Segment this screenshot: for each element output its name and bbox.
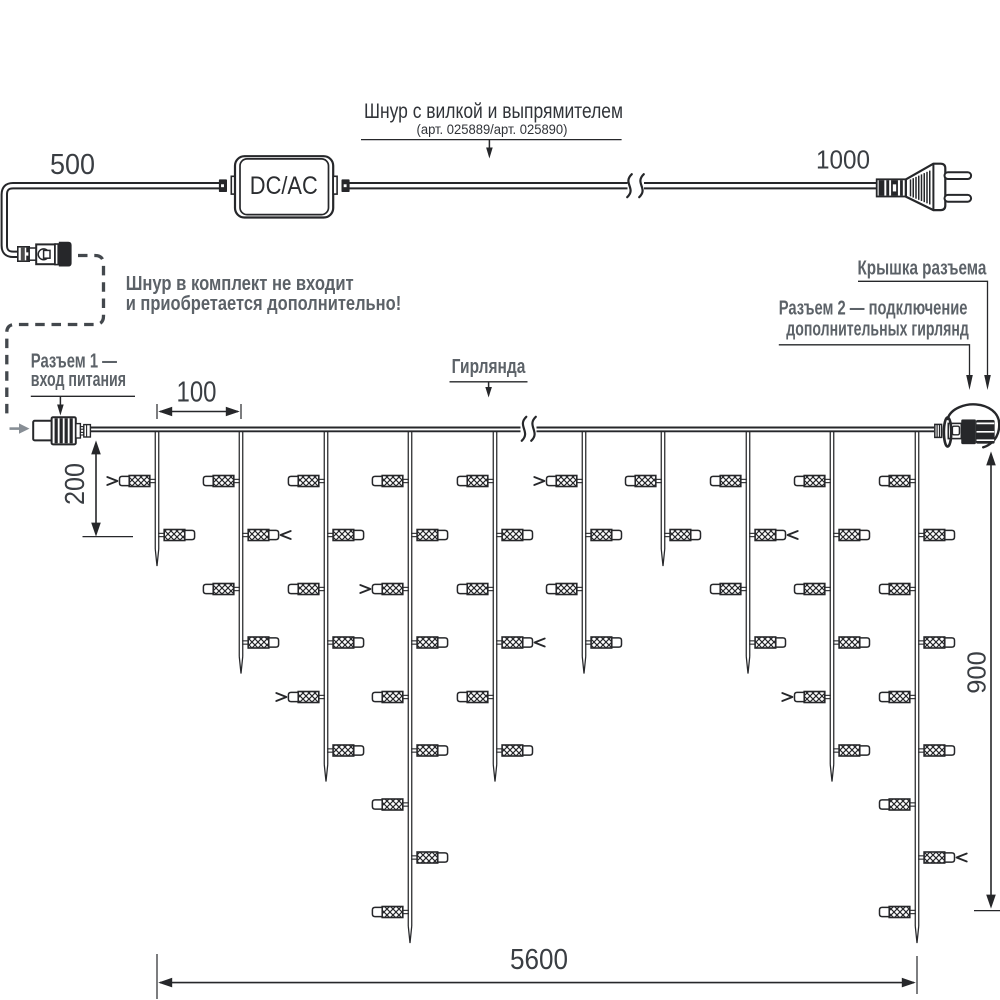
svg-text:Шнур с вилкой и выпрямителем: Шнур с вилкой и выпрямителем [364,99,623,123]
svg-text:DC/AC: DC/AC [250,172,318,200]
svg-text:100: 100 [177,377,217,409]
svg-text:вход питания: вход питания [31,368,126,391]
svg-text:Гирлянда: Гирлянда [452,355,526,378]
svg-text:1000: 1000 [816,145,870,175]
svg-text:500: 500 [50,149,95,181]
svg-text:и приобретается дополнительно!: и приобретается дополнительно! [126,292,402,315]
svg-text:Крышка разъема: Крышка разъема [858,256,987,279]
svg-text:200: 200 [59,463,90,505]
svg-text:Разъем 2 — подключение: Разъем 2 — подключение [779,296,968,319]
svg-text:(арт. 025889/арт. 025890): (арт. 025889/арт. 025890) [417,122,568,138]
svg-text:дополнительных гирлянд: дополнительных гирлянд [786,317,969,340]
svg-text:5600: 5600 [510,944,568,976]
svg-text:900: 900 [962,651,992,694]
